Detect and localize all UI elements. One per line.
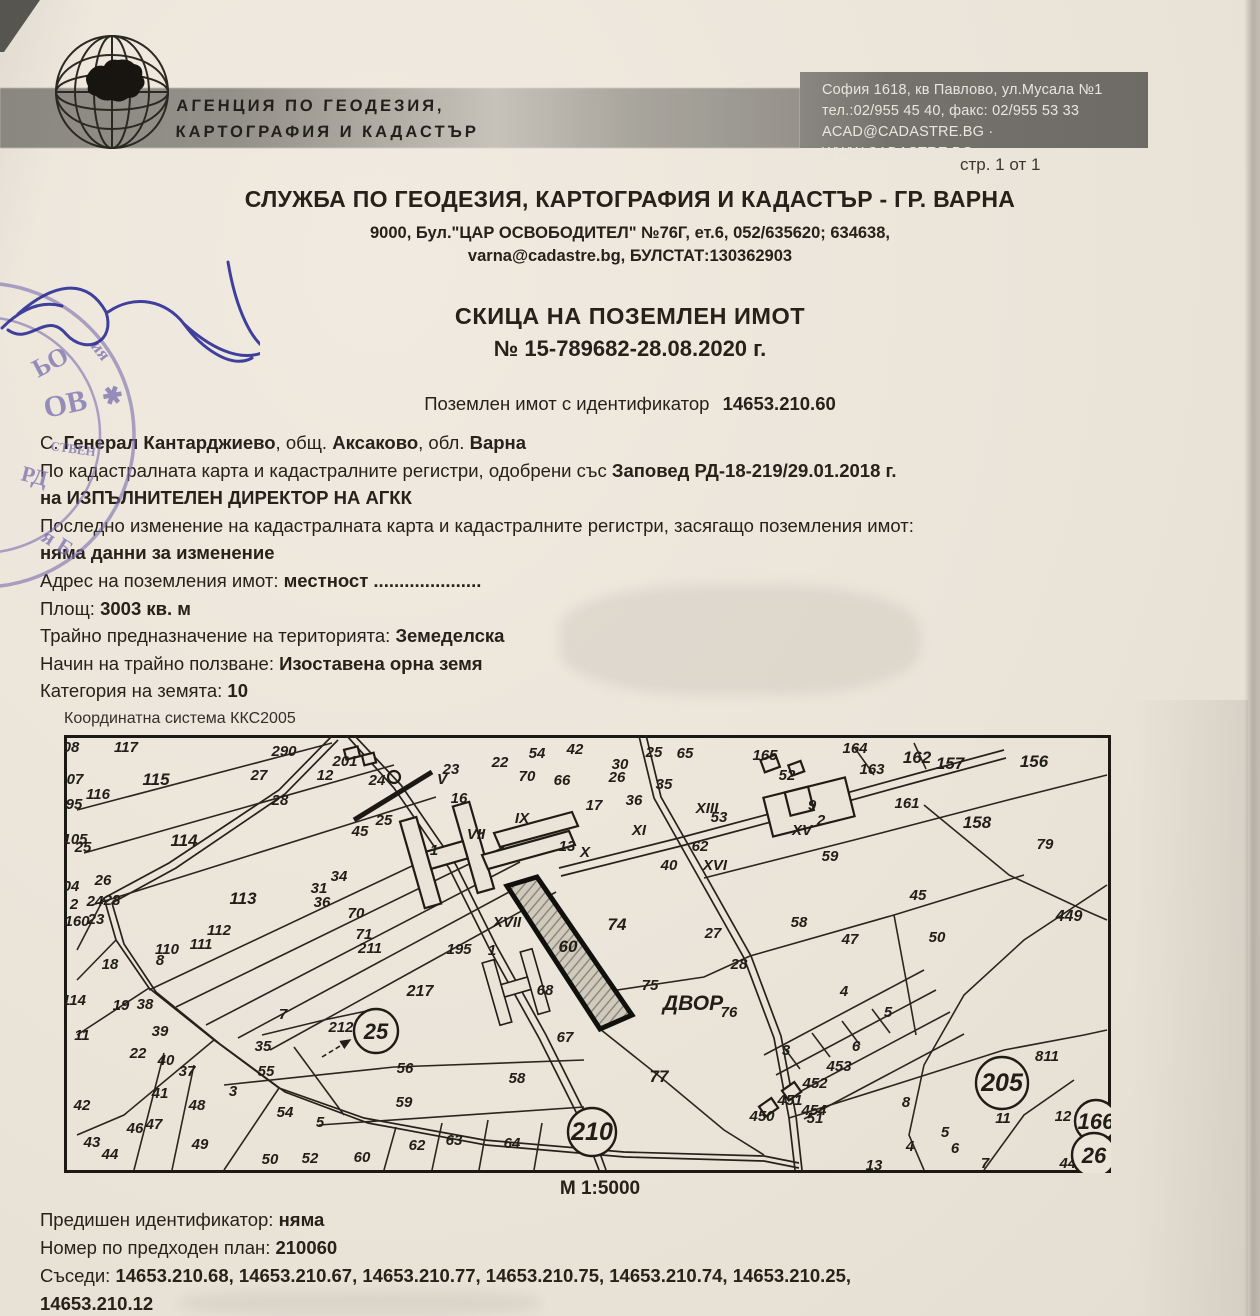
parcel-label: 1 — [430, 842, 438, 859]
region-number: 205 — [980, 1069, 1024, 1097]
page-number: стр. 1 от 1 — [960, 155, 1130, 175]
parcel-label: 12 — [317, 767, 334, 784]
property-details: С. Генерал Кантарджиево, общ. Аксаково, … — [40, 433, 1210, 709]
detail-line: Трайно предназначение на територията: Зе… — [40, 626, 1210, 645]
parcel-label: 5 — [316, 1114, 325, 1131]
parcel-label: 48 — [188, 1097, 206, 1114]
agency-name-line1: АГЕНЦИЯ ПО ГЕОДЕЗИЯ, — [176, 93, 480, 119]
parcel-label: 111 — [190, 936, 213, 953]
parcel-label: 117 — [114, 739, 139, 756]
parcel-label: 62 — [692, 838, 709, 855]
parcel-label: XVII — [492, 914, 522, 931]
agency-name-line2: КАРТОГРАФИЯ И КАДАСТЪР — [175, 119, 479, 145]
parcel-label: 46 — [126, 1120, 144, 1137]
parcel-label: 164 — [842, 740, 868, 757]
detail-line: Площ: 3003 кв. м — [40, 599, 1210, 618]
parcel-label: 113 — [229, 889, 257, 908]
parcel-label: 64 — [504, 1135, 521, 1152]
parcel-label: 156 — [1020, 752, 1049, 771]
parcel-label: 50 — [929, 929, 946, 946]
parcel-label: 50 — [262, 1151, 279, 1168]
detail-line: С. Генерал Кантарджиево, общ. Аксаково, … — [40, 433, 1210, 452]
parcel-label: 6 — [951, 1140, 960, 1157]
parcel-label: 28 — [271, 792, 289, 809]
identifier-value: 14653.210.60 — [723, 393, 836, 414]
region-number: 26 — [1081, 1143, 1107, 1168]
parcel-label: 452 — [801, 1075, 828, 1092]
parcel-label: 2 — [69, 896, 79, 913]
parcel-label: 13 — [559, 838, 576, 855]
parcel-label: 16 — [451, 790, 468, 807]
detail-line: няма данни за изменение — [40, 543, 1210, 562]
scanned-cadastral-document: София 1618, кв Павлово, ул.Мусала №1 тел… — [0, 0, 1260, 1316]
agency-address-line1: София 1618, кв Павлово, ул.Мусала №1 — [822, 80, 1142, 101]
parcel-label: 18 — [102, 956, 119, 973]
parcel-label: 04 — [64, 878, 80, 895]
parcel-label: 11 — [995, 1110, 1011, 1127]
parcel-label: 11 — [74, 1027, 90, 1044]
coordinate-system-caption: Координатна система ККС2005 — [64, 710, 296, 728]
parcel-label: 162 — [903, 748, 932, 767]
parcel-label: 24 — [368, 772, 386, 789]
parcel-label: 49 — [191, 1136, 209, 1153]
parcel-label: 07 — [67, 771, 84, 788]
parcel-label: 74 — [608, 915, 627, 934]
parcel-label: 811 — [1035, 1048, 1059, 1065]
parcel-label: 114 — [170, 831, 198, 850]
detail-line: Начин на трайно ползване: Изоставена орн… — [40, 654, 1210, 673]
parcel-label: 290 — [270, 743, 297, 760]
parcel-label: 195 — [446, 941, 472, 958]
parcel-label: 36 — [314, 894, 331, 911]
map-scale: М 1:5000 — [0, 1178, 1200, 1200]
parcel-label: 44 — [101, 1146, 119, 1163]
parcel-label: 52 — [302, 1150, 319, 1167]
parcel-label: 22 — [491, 754, 509, 771]
parcel-label: 23 — [87, 911, 105, 928]
agency-name: АГЕНЦИЯ ПО ГЕОДЕЗИЯ, КАРТОГРАФИЯ И КАДАС… — [175, 93, 480, 145]
parcel-label: 58 — [791, 914, 808, 931]
neighbors-values: 14653.210.68, 14653.210.67, 14653.210.77… — [115, 1265, 851, 1286]
parcel-label: 161 — [894, 795, 919, 812]
parcel-label: 3 — [229, 1083, 238, 1100]
parcel-label: 08 — [64, 739, 80, 756]
parcel-label: 40 — [157, 1052, 175, 1069]
parcel-label: 35 — [255, 1038, 272, 1055]
parcel-label: 63 — [446, 1132, 463, 1149]
parcel-label: 12 — [1055, 1108, 1072, 1125]
parcel-label: 47 — [145, 1116, 163, 1133]
parcel-label: 68 — [537, 982, 554, 999]
parcel-label: 212 — [327, 1019, 354, 1036]
parcel-label: 4 — [839, 983, 849, 1000]
parcel-label: 60 — [354, 1149, 371, 1166]
parcel-label: 52 — [779, 767, 796, 784]
photo-corner-shadow — [0, 0, 46, 56]
parcel-label: 5 — [884, 1004, 893, 1021]
parcel-label: 42 — [566, 741, 584, 758]
parcel-label: 116 — [86, 786, 111, 803]
parcel-identifier-line: Поземлен имот с идентификатор 14653.210.… — [0, 393, 1260, 415]
previous-identifier-label: Предишен идентификатор: — [40, 1209, 279, 1230]
parcel-label: 28 — [730, 956, 748, 973]
document-title: СКИЦА НА ПОЗЕМЛЕН ИМОТ — [0, 303, 1260, 330]
parcel-label: 1 — [488, 942, 496, 959]
plan-number-value: 210060 — [275, 1237, 337, 1258]
parcel-label: 77 — [650, 1067, 670, 1086]
parcel-label: 157 — [936, 754, 966, 773]
parcel-label: VII — [467, 826, 486, 843]
previous-identifier-value: няма — [279, 1209, 325, 1230]
parcel-label: 114 — [64, 992, 87, 1009]
parcel-label: 25 — [74, 839, 92, 856]
parcel-label: 211 — [357, 940, 382, 957]
neighbors-label: Съседи: — [40, 1265, 115, 1286]
parcel-label: 6 — [852, 1038, 861, 1055]
parcel-label: 41 — [151, 1085, 169, 1102]
parcel-label: 8 — [156, 952, 165, 969]
neighbors-line2: 14653.210.12 — [40, 1290, 1220, 1316]
parcel-label: 163 — [859, 761, 885, 778]
cadastral-map: 0811707115116951052511426042428216023113… — [64, 735, 1111, 1173]
parcel-label: 201 — [331, 753, 357, 770]
parcel-label: 45 — [909, 887, 927, 904]
region-number: 210 — [570, 1118, 613, 1146]
parcel-label: 27 — [250, 767, 268, 784]
office-address-line1: 9000, Бул."ЦАР ОСВОБОДИТЕЛ" №76Г, ет.6, … — [0, 224, 1260, 243]
subject-parcel-number: 60 — [559, 937, 578, 956]
neighbors-values-cont: 14653.210.12 — [40, 1293, 153, 1314]
parcel-label: 58 — [509, 1070, 526, 1087]
parcel-label: 38 — [137, 996, 154, 1013]
parcel-label: 28 — [103, 892, 121, 909]
parcel-label: 22 — [129, 1045, 147, 1062]
parcel-label: 9 — [808, 797, 817, 814]
previous-identifier-line: Предишен идентификатор: няма — [40, 1206, 1220, 1234]
parcel-label: 8 — [902, 1094, 911, 1111]
parcel-label: 47 — [841, 931, 859, 948]
parcel-label: 59 — [822, 848, 839, 865]
office-title: СЛУЖБА ПО ГЕОДЕЗИЯ, КАРТОГРАФИЯ И КАДАСТ… — [0, 186, 1260, 213]
parcel-label: 76 — [721, 1004, 738, 1021]
parcel-label: 70 — [519, 768, 536, 785]
parcel-label: 3 — [782, 1042, 791, 1059]
detail-line: Категория на земята: 10 — [40, 681, 1210, 700]
parcel-label: 23 — [442, 761, 460, 778]
parcel-label: 54 — [277, 1104, 294, 1121]
parcel-label: 51 — [807, 1110, 824, 1127]
parcel-label: 53 — [711, 809, 728, 826]
parcel-label: 160 — [64, 913, 90, 930]
parcel-label: 55 — [258, 1063, 275, 1080]
parcel-label: 42 — [73, 1097, 91, 1114]
parcel-label: 25 — [375, 812, 393, 829]
parcel-label: 75 — [642, 977, 659, 994]
document-number: № 15-789682-28.08.2020 г. — [0, 336, 1260, 362]
parcel-label: 165 — [752, 747, 778, 764]
region-number: 25 — [363, 1019, 389, 1044]
parcel-label: 449 — [1055, 908, 1083, 925]
parcel-label: 62 — [409, 1137, 426, 1154]
parcel-label: 4 — [905, 1138, 915, 1155]
agency-address: София 1618, кв Павлово, ул.Мусала №1 тел… — [822, 80, 1142, 164]
detail-line: на ИЗПЪЛНИТЕЛЕН ДИРЕКТОР НА АГКК — [40, 488, 1210, 507]
parcel-label: 56 — [397, 1060, 414, 1077]
parcel-label: 451 — [776, 1092, 802, 1109]
parcel-label: 115 — [142, 770, 170, 789]
parcel-label: 59 — [396, 1094, 413, 1111]
parcel-label: 39 — [152, 1023, 169, 1040]
parcel-label: 79 — [1037, 836, 1054, 853]
parcel-label: X — [579, 844, 591, 861]
bulgaria-silhouette — [86, 60, 145, 102]
parcel-label: 34 — [331, 868, 348, 885]
parcel-label: 36 — [626, 792, 643, 809]
parcel-label: 66 — [554, 772, 571, 789]
parcel-label: 45 — [351, 823, 369, 840]
parcel-label: 7 — [981, 1155, 990, 1172]
parcel-label: 17 — [586, 797, 603, 814]
parcel-label: 40 — [660, 857, 678, 874]
parcel-label: 35 — [656, 776, 673, 793]
parcel-label: 19 — [113, 997, 130, 1014]
plan-number-line: Номер по предходен план: 210060 — [40, 1234, 1220, 1262]
parcel-label: 5 — [941, 1124, 950, 1141]
globe-bulgaria-icon — [50, 28, 178, 162]
parcel-label: XVI — [702, 857, 728, 874]
region-number: 166 — [1078, 1109, 1111, 1134]
neighbors-line: Съседи: 14653.210.68, 14653.210.67, 1465… — [40, 1262, 1220, 1290]
detail-line: Адрес на поземления имот: местност .....… — [40, 571, 1210, 590]
parcel-label: 37 — [179, 1063, 196, 1080]
parcel-label: XV — [791, 822, 814, 839]
parcel-label: 7 — [279, 1006, 288, 1023]
parcel-label: 67 — [557, 1029, 574, 1046]
parcel-label: 217 — [406, 983, 435, 1000]
parcel-label: IX — [515, 810, 530, 827]
parcel-label: 26 — [94, 872, 112, 889]
parcel-label: 13 — [866, 1157, 883, 1173]
agency-address-line2: тел.:02/955 45 40, факс: 02/955 53 33 — [822, 101, 1142, 122]
parcel-label: 43 — [83, 1134, 101, 1151]
pointer-arrow — [322, 1040, 350, 1057]
parcel-label: 54 — [529, 745, 546, 762]
parcel-label: 95 — [66, 796, 83, 813]
parcel-label: 70 — [348, 905, 365, 922]
zone-label-dvor: ДВОР — [661, 992, 724, 1015]
parcel-label: 450 — [748, 1108, 775, 1125]
parcel-label: 453 — [825, 1058, 852, 1075]
parcel-label: XI — [631, 822, 647, 839]
parcel-label: 2 — [816, 812, 826, 829]
footer-details: Предишен идентификатор: няма Номер по пр… — [40, 1206, 1220, 1316]
identifier-label: Поземлен имот с идентификатор — [424, 393, 709, 414]
parcel-label: 65 — [677, 745, 694, 762]
parcel-label: 27 — [704, 925, 722, 942]
parcel-label: 158 — [963, 813, 992, 832]
parcel-label: 24 — [86, 893, 104, 910]
plan-number-label: Номер по предходен план: — [40, 1237, 275, 1258]
parcel-label: 25 — [645, 744, 663, 761]
parcel-label: 26 — [608, 769, 626, 786]
office-address-line2: varna@cadastre.bg, БУЛСТАТ:130362903 — [0, 247, 1260, 266]
detail-line: Последно изменение на кадастралната карт… — [40, 516, 1210, 535]
detail-line: По кадастралната карта и кадастралните р… — [40, 461, 1210, 480]
